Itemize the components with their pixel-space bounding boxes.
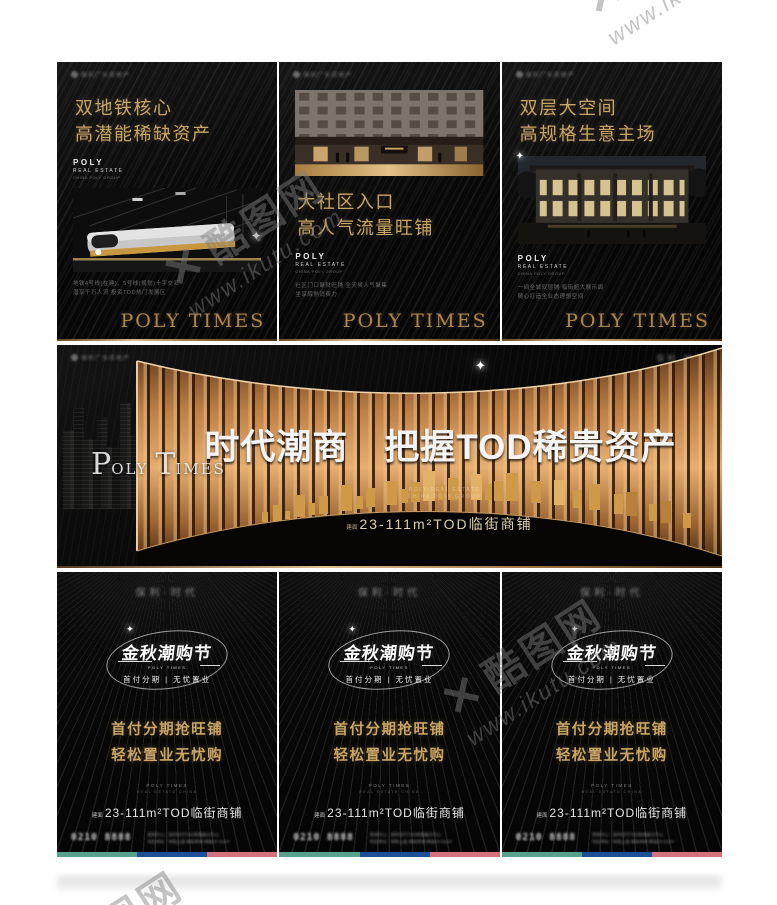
poly-brand-block: POLY REAL ESTATE CHINA POLY GROUP [518,254,706,276]
title-line1: 双层大空间 [520,96,706,122]
area-prefix: 建面 [346,525,357,531]
badge-underline [340,661,374,662]
contact-info: 0210 8888 营销中心：保利时代TOD商铺展示中心 项目地址：地铁上盖 临… [293,832,491,845]
phone-number: 0210 8888 [293,832,353,843]
title-line1: 大社区入口 [297,190,483,216]
badge-brand: POLY TIMES [92,665,242,670]
stock-image-preview: 保利广东房地产 双地铁核心 高潜能稀缺资产 POLY REAL ESTATE C… [0,0,777,905]
promo-headline: 首付分期抢旺铺 轻松置业无忧购 [111,717,223,769]
poly-times-wordmark: POLY TIMES [120,310,265,332]
project-logo: 保利·时代 [580,584,643,599]
strip-navy [360,852,430,857]
banner-headline: 时代潮商 把握TOD稀贵资产 [165,419,716,470]
promo-line2: 轻松置业无忧购 [556,743,668,769]
desc-line1: 社区门口聚财旺铺 全天候人气聚集 [295,282,483,291]
poster-title: 大社区入口 高人气流量旺铺 [297,190,483,242]
brand-name: POLY [295,252,483,261]
festival-badge: ✦ 金秋潮购节 POLY TIMES 首付分期|无忧置业 [537,629,687,695]
logo-letter: P [91,447,111,482]
promo-line1: 首付分期抢旺铺 [111,717,223,743]
poly-emblem-icon [516,71,523,78]
poster-description: 社区门口聚财旺铺 全天候人气聚集 坐享醇熟消费力 [295,282,483,300]
brand-name: POLY [73,158,261,167]
color-strip [57,852,277,857]
title-line2: 高潜能稀缺资产 [75,122,261,148]
brand-tiny: CHINA POLY GROUP [295,269,483,274]
brand-tiny: CHINA POLY GROUP [518,271,706,276]
strip-pink [652,852,722,857]
brand-line: POLY REAL ESTATE [167,487,722,494]
strip-teal [57,852,137,857]
badge-brand: POLY TIMES [314,665,464,670]
gold-divider [279,339,499,342]
desc-line2: 随心打造全业态理想空间 [518,293,706,302]
contact-info: 0210 8888 营销中心：保利时代TOD商铺展示中心 项目地址：地铁上盖 临… [516,832,714,845]
poster-description: 一间全城双层铺 临街超大展示面 随心打造全业态理想空间 [518,284,706,302]
badge-brand: POLY TIMES [537,665,687,670]
desc-line1: 地铁4号线(在建)、5号线(规划)十字交汇 [73,280,261,289]
area-main: 23-111m²TOD临街商铺 [359,516,532,532]
festival-badge: ✦ 金秋潮购节 POLY TIMES 首付分期|无忧置业 [92,629,242,695]
sparkle-icon: ✦ [126,625,134,634]
logo-letters: OLY [111,460,148,478]
community-entrance-photo [295,90,483,176]
desc-line2: 潜享千万人流 投资TOD热门发展区 [73,289,261,298]
poster-main-banner: 保利广东房地产 保利·时代 [57,345,722,568]
contact-lines: 营销中心：保利时代TOD商铺展示中心 项目地址：地铁上盖 临街商铺 建面23-1… [370,832,492,845]
gold-divider [502,339,722,342]
bronze-divider [57,566,722,569]
promo-line1: 首付分期抢旺铺 [333,717,445,743]
poster-duplex: 保利广东房地产 双层大空间 高规格生意主场 ✦ [502,62,722,341]
area-text: 建面23-111m²TOD临街商铺 [92,804,243,821]
banner-area-text: 建面23-111m²TOD临街商铺 [165,514,714,534]
brand-sub: REAL ESTATE [73,168,261,174]
project-logo: 保利·时代 [358,584,421,599]
developer-logo: 保利广东房地产 [516,70,575,79]
poly-times-small: POLY TIMES REAL ESTATE CHINA [137,783,197,795]
area-text: 建面23-111m²TOD临街商铺 [314,804,465,821]
promo-headline: 首付分期抢旺铺 轻松置业无忧购 [556,717,668,769]
badge-underline [118,661,152,662]
strip-pink [430,852,500,857]
metro-train-photo [73,188,261,272]
promo-poster-row: 保利·时代 ✦ 金秋潮购节 POLY TIMES 首付分期|无忧置业 首付分期抢… [57,572,722,857]
image-drop-shadow [57,876,722,891]
developer-logo-text: 保利广东房地产 [81,70,130,79]
poly-emblem-icon [71,71,78,78]
poster-promo-left: 保利·时代 ✦ 金秋潮购节 POLY TIMES 首付分期|无忧置业 首付分期抢… [57,572,277,857]
brand-tiny: CHINA POLY GROUP [73,175,261,180]
poly-times-small: POLY TIMES REAL ESTATE CHINA [582,783,642,795]
festival-title: 金秋潮购节 [313,639,466,664]
poly-emblem-icon [293,71,300,78]
strip-pink [207,852,277,857]
poly-brand-block: POLY REAL ESTATE CHINA POLY GROUP [73,158,261,180]
contact-info: 0210 8888 营销中心：保利时代TOD商铺展示中心 项目地址：地铁上盖 临… [71,832,269,845]
poster-promo-right: 保利·时代 ✦ 金秋潮购节 POLY TIMES 首付分期|无忧置业 首付分期抢… [502,572,722,857]
poly-times-wordmark: POLY TIMES [565,310,710,332]
developer-logo-text: 保利广东房地产 [526,70,575,79]
developer-logo: 保利广东房地产 [71,70,130,79]
watermark: ✕酷图网www.ikutu.com [570,0,768,50]
strip-navy [137,852,207,857]
promo-headline: 首付分期抢旺铺 轻松置业无忧购 [333,717,445,769]
brand-sub: REAL ESTATE [295,262,483,268]
x-mark-icon: ✕ [572,0,636,26]
strip-teal [502,852,582,857]
title-line1: 双地铁核心 [75,96,261,122]
developer-logo: 保利广东房地产 [293,70,352,79]
poly-times-small: POLY TIMES REAL ESTATE CHINA [359,783,419,795]
developer-logo-text: 保利广东房地产 [303,70,352,79]
phone-number: 0210 8888 [71,832,131,843]
color-strip [502,852,722,857]
sparkle-icon: ✦ [348,625,356,634]
retail-building-photo [518,156,706,244]
festival-title: 金秋潮购节 [91,639,244,664]
sparkle-icon: ✦ [251,230,261,242]
contact-lines: 营销中心：保利时代TOD商铺展示中心 项目地址：地铁上盖 临街商铺 建面23-1… [592,832,714,845]
poster-title: 双地铁核心 高潜能稀缺资产 [75,96,261,148]
area-text: 建面23-111m²TOD临街商铺 [536,804,687,821]
strip-navy [582,852,652,857]
project-logo: 保利·时代 [135,584,198,599]
poster-promo-center: 保利·时代 ✦ 金秋潮购节 POLY TIMES 首付分期|无忧置业 首付分期抢… [279,572,499,857]
festival-title: 金秋潮购节 [535,639,688,664]
sparkle-icon: ✦ [516,152,524,162]
title-line2: 高人气流量旺铺 [297,216,483,242]
brand-name: POLY [518,254,706,263]
phone-number: 0210 8888 [516,832,576,843]
poly-times-wordmark: POLY TIMES [343,310,488,332]
poly-brand-small: POLY REAL ESTATE CHINA POLY GROUP [167,487,722,501]
poster-composite: 保利广东房地产 双地铁核心 高潜能稀缺资产 POLY REAL ESTATE C… [57,62,722,857]
desc-line2: 坐享醇熟消费力 [295,291,483,300]
desc-line1: 一间全城双层铺 临街超大展示面 [518,284,706,293]
title-line2: 高规格生意主场 [520,122,706,148]
sparkle-icon: ✦ [475,359,486,372]
strip-teal [279,852,359,857]
badge-underline [563,661,597,662]
sparkle-icon: ✦ [571,625,579,634]
color-strip [279,852,499,857]
brand-sub: REAL ESTATE [518,264,706,270]
promo-line1: 首付分期抢旺铺 [556,717,668,743]
gold-divider [57,339,277,342]
contact-lines: 营销中心：保利时代TOD商铺展示中心 项目地址：地铁上盖 临街商铺 建面23-1… [147,832,269,845]
poster-title: 双层大空间 高规格生意主场 [520,96,706,148]
promo-line2: 轻松置业无忧购 [111,743,223,769]
poster-community: 保利广东房地产 [279,62,499,341]
promo-line2: 轻松置业无忧购 [333,743,445,769]
poly-brand-block: POLY REAL ESTATE CHINA POLY GROUP [295,252,483,274]
brand-tiny-line: CHINA POLY GROUP [167,494,722,501]
poster-metro: 保利广东房地产 双地铁核心 高潜能稀缺资产 POLY REAL ESTATE C… [57,62,277,341]
poster-description: 地铁4号线(在建)、5号线(规划)十字交汇 潜享千万人流 投资TOD热门发展区 [73,280,261,298]
top-poster-row: 保利广东房地产 双地铁核心 高潜能稀缺资产 POLY REAL ESTATE C… [57,62,722,341]
festival-badge: ✦ 金秋潮购节 POLY TIMES 首付分期|无忧置业 [314,629,464,695]
